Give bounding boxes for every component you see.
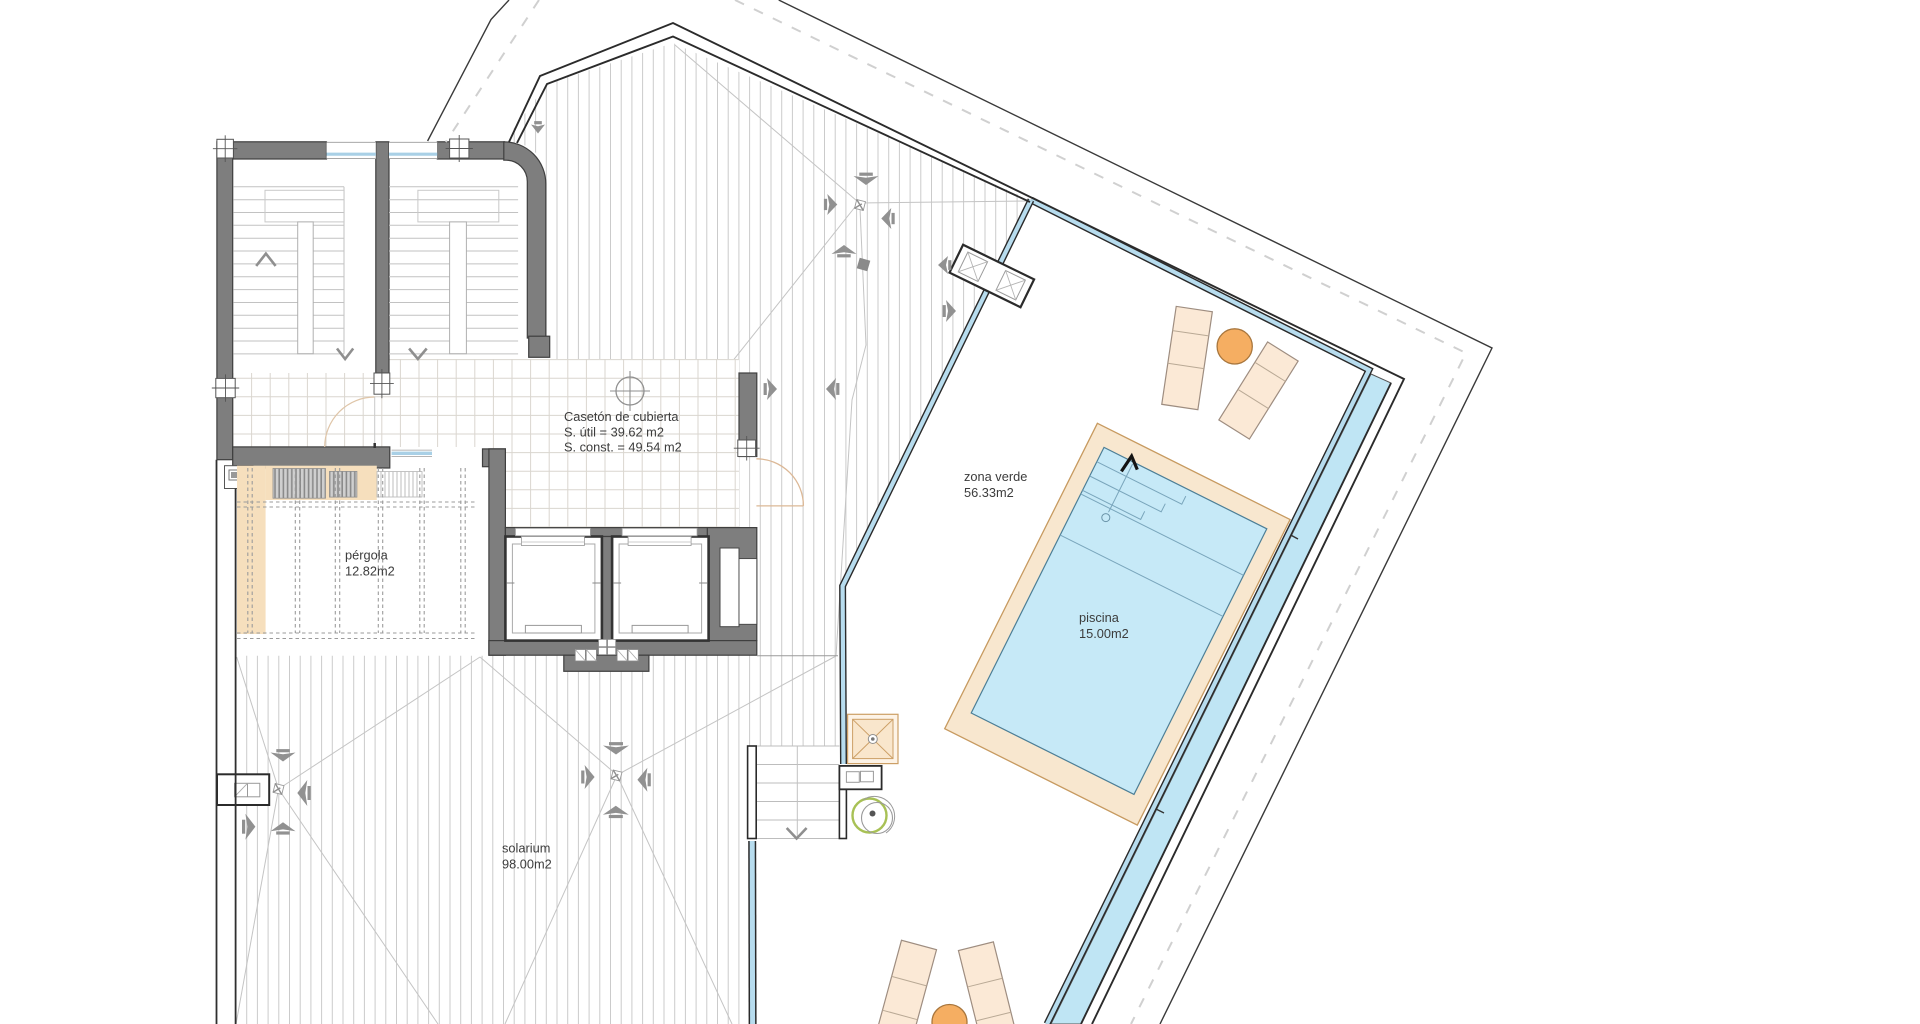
svg-text:zona verde: zona verde bbox=[964, 469, 1027, 484]
svg-text:12.82m2: 12.82m2 bbox=[345, 564, 395, 579]
svg-text:56.33m2: 56.33m2 bbox=[964, 485, 1014, 500]
svg-text:solarium: solarium bbox=[502, 841, 550, 856]
svg-text:98.00m2: 98.00m2 bbox=[502, 857, 552, 872]
svg-text:piscina: piscina bbox=[1079, 610, 1120, 625]
svg-text:S. útil = 39.62 m2: S. útil = 39.62 m2 bbox=[564, 425, 664, 440]
svg-text:15.00m2: 15.00m2 bbox=[1079, 626, 1129, 641]
svg-text:S. const. = 49.54 m2: S. const. = 49.54 m2 bbox=[564, 440, 682, 455]
svg-text:pérgola: pérgola bbox=[345, 548, 389, 563]
svg-text:Casetón de cubierta: Casetón de cubierta bbox=[564, 409, 679, 424]
